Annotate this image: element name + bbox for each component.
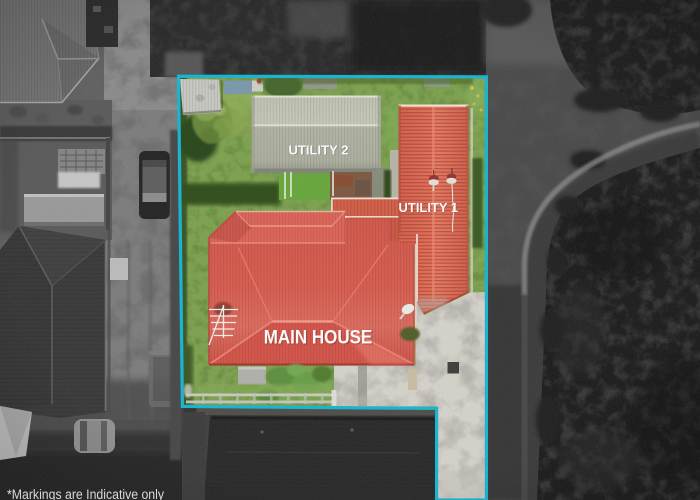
svg-text:*Markings are Indicative only: *Markings are Indicative only bbox=[7, 487, 164, 500]
